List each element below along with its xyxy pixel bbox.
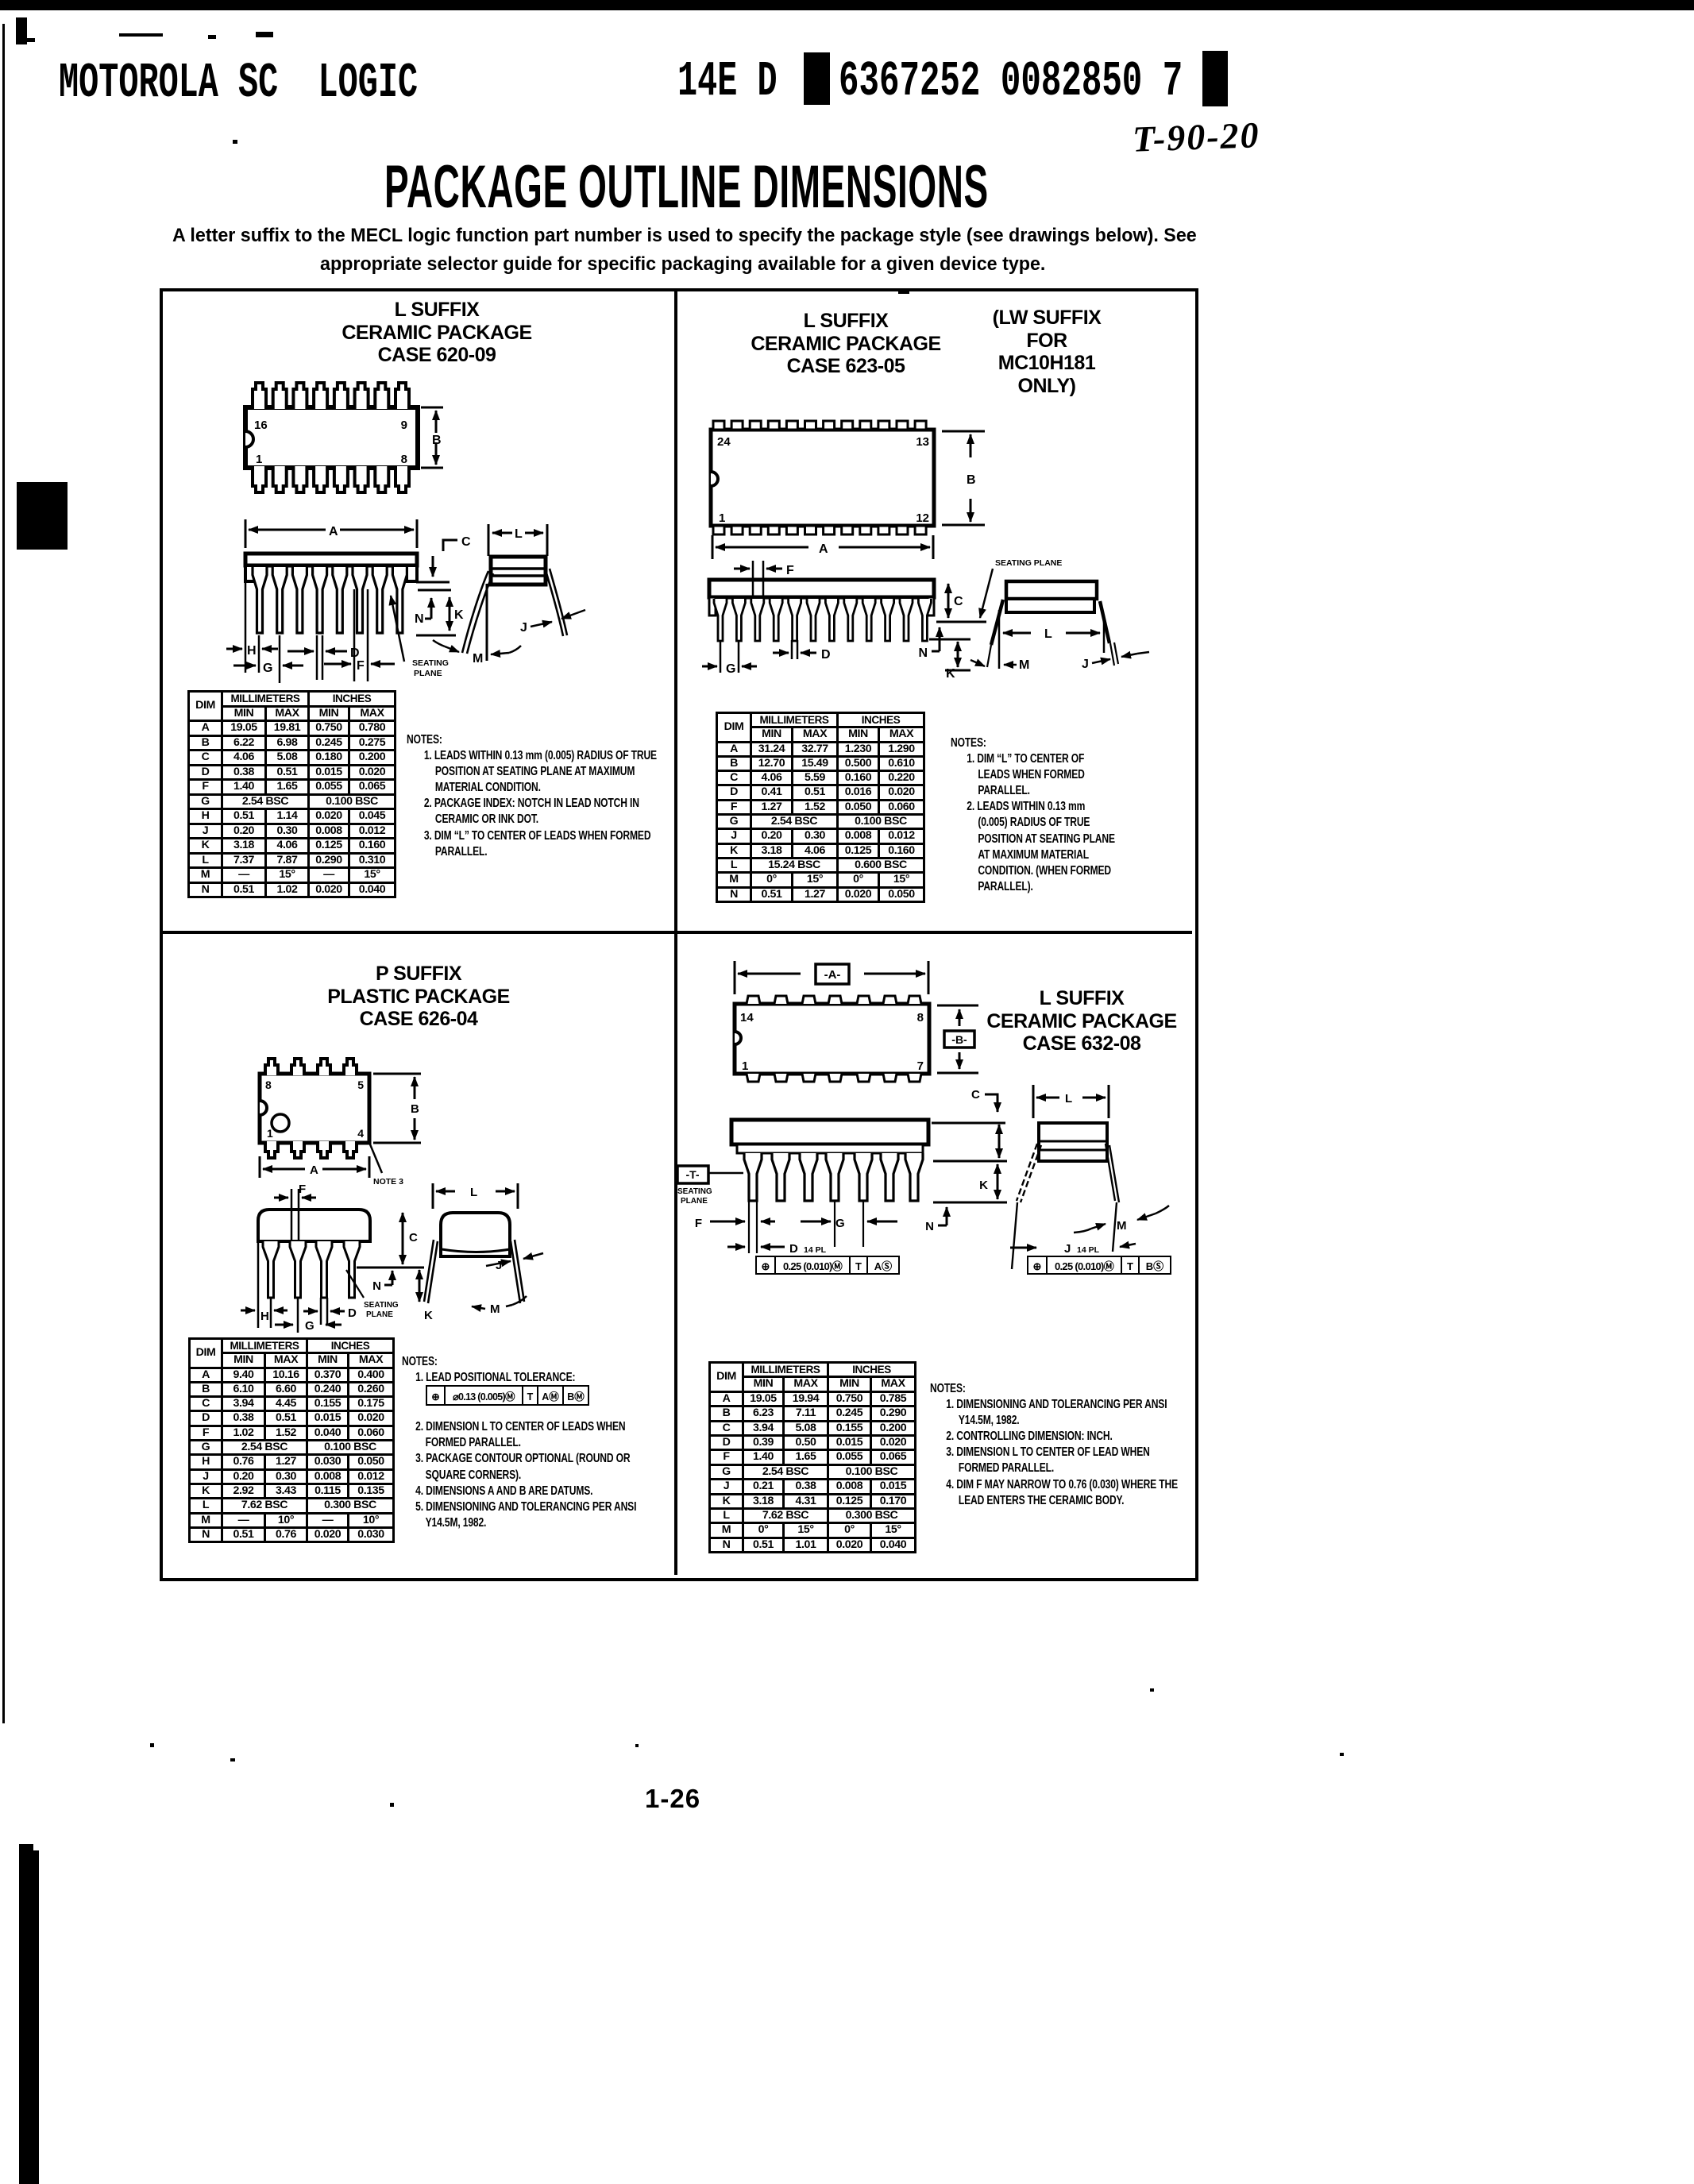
svg-text:1: 1	[742, 1059, 748, 1073]
svg-text:L: L	[1065, 1092, 1072, 1106]
svg-text:9: 9	[401, 419, 407, 432]
svg-text:1: 1	[719, 511, 725, 525]
svg-text:N: N	[925, 1220, 934, 1233]
svg-text:G: G	[305, 1319, 314, 1333]
svg-text:SEATING: SEATING	[412, 658, 449, 668]
svg-text:F: F	[299, 1183, 306, 1196]
svg-text:G: G	[726, 662, 735, 676]
svg-text:N: N	[372, 1279, 381, 1293]
svg-text:7: 7	[917, 1059, 924, 1073]
svg-text:A: A	[819, 542, 828, 556]
svg-text:H: H	[247, 644, 257, 658]
svg-text:C: C	[409, 1231, 418, 1244]
svg-text:A: A	[329, 525, 338, 538]
svg-text:A: A	[310, 1163, 318, 1177]
svg-text:N: N	[918, 646, 928, 660]
svg-text:G: G	[263, 662, 272, 675]
svg-text:J: J	[496, 1259, 502, 1272]
svg-text:H: H	[260, 1310, 269, 1323]
svg-text:-B-: -B-	[951, 1033, 967, 1046]
svg-text:J: J	[1064, 1242, 1071, 1256]
svg-text:M: M	[473, 652, 483, 666]
svg-text:-T-: -T-	[685, 1168, 699, 1181]
svg-text:14 PL: 14 PL	[804, 1245, 827, 1255]
svg-text:N: N	[415, 612, 424, 626]
svg-text:4: 4	[357, 1127, 364, 1140]
svg-text:L: L	[515, 527, 523, 541]
svg-text:B: B	[967, 473, 976, 487]
svg-text:K: K	[454, 608, 464, 622]
svg-text:F: F	[786, 564, 794, 577]
svg-text:NOTE 3: NOTE 3	[373, 1177, 403, 1187]
svg-text:B: B	[432, 434, 442, 447]
svg-text:1: 1	[267, 1127, 273, 1140]
svg-text:13: 13	[916, 435, 929, 449]
svg-text:L: L	[1044, 627, 1052, 641]
svg-text:1: 1	[256, 453, 262, 466]
svg-text:C: C	[954, 595, 963, 608]
svg-text:D: D	[789, 1242, 798, 1256]
svg-text:PLANE: PLANE	[414, 669, 442, 678]
svg-text:D: D	[348, 1306, 357, 1320]
svg-text:24: 24	[717, 435, 731, 449]
svg-text:D: D	[350, 646, 360, 660]
svg-text:PLANE: PLANE	[366, 1310, 393, 1319]
svg-text:F: F	[357, 659, 365, 673]
svg-text:K: K	[424, 1309, 433, 1322]
svg-text:J: J	[1082, 658, 1089, 671]
svg-text:C: C	[461, 535, 471, 549]
svg-text:M: M	[1019, 658, 1029, 672]
svg-text:14 PL: 14 PL	[1077, 1245, 1100, 1255]
svg-text:K: K	[979, 1179, 988, 1192]
svg-text:D: D	[821, 648, 831, 662]
svg-text:PLANE: PLANE	[681, 1197, 708, 1206]
svg-text:8: 8	[917, 1011, 924, 1024]
svg-text:14: 14	[740, 1011, 754, 1024]
svg-text:M: M	[1117, 1219, 1127, 1233]
svg-text:L: L	[470, 1186, 477, 1199]
svg-text:5: 5	[357, 1078, 364, 1091]
svg-text:J: J	[520, 621, 527, 635]
svg-text:SEATING PLANE: SEATING PLANE	[995, 558, 1062, 568]
svg-text:SEATING: SEATING	[364, 1301, 399, 1310]
svg-text:F: F	[695, 1217, 702, 1230]
svg-text:-A-: -A-	[824, 968, 841, 982]
svg-text:SEATING: SEATING	[677, 1187, 712, 1196]
svg-text:8: 8	[265, 1078, 272, 1091]
svg-text:16: 16	[254, 419, 268, 432]
svg-text:C: C	[971, 1088, 980, 1102]
svg-text:G: G	[835, 1217, 845, 1230]
svg-text:8: 8	[401, 453, 407, 466]
svg-text:12: 12	[916, 511, 929, 525]
svg-text:B: B	[411, 1102, 419, 1116]
svg-text:M: M	[490, 1302, 500, 1316]
